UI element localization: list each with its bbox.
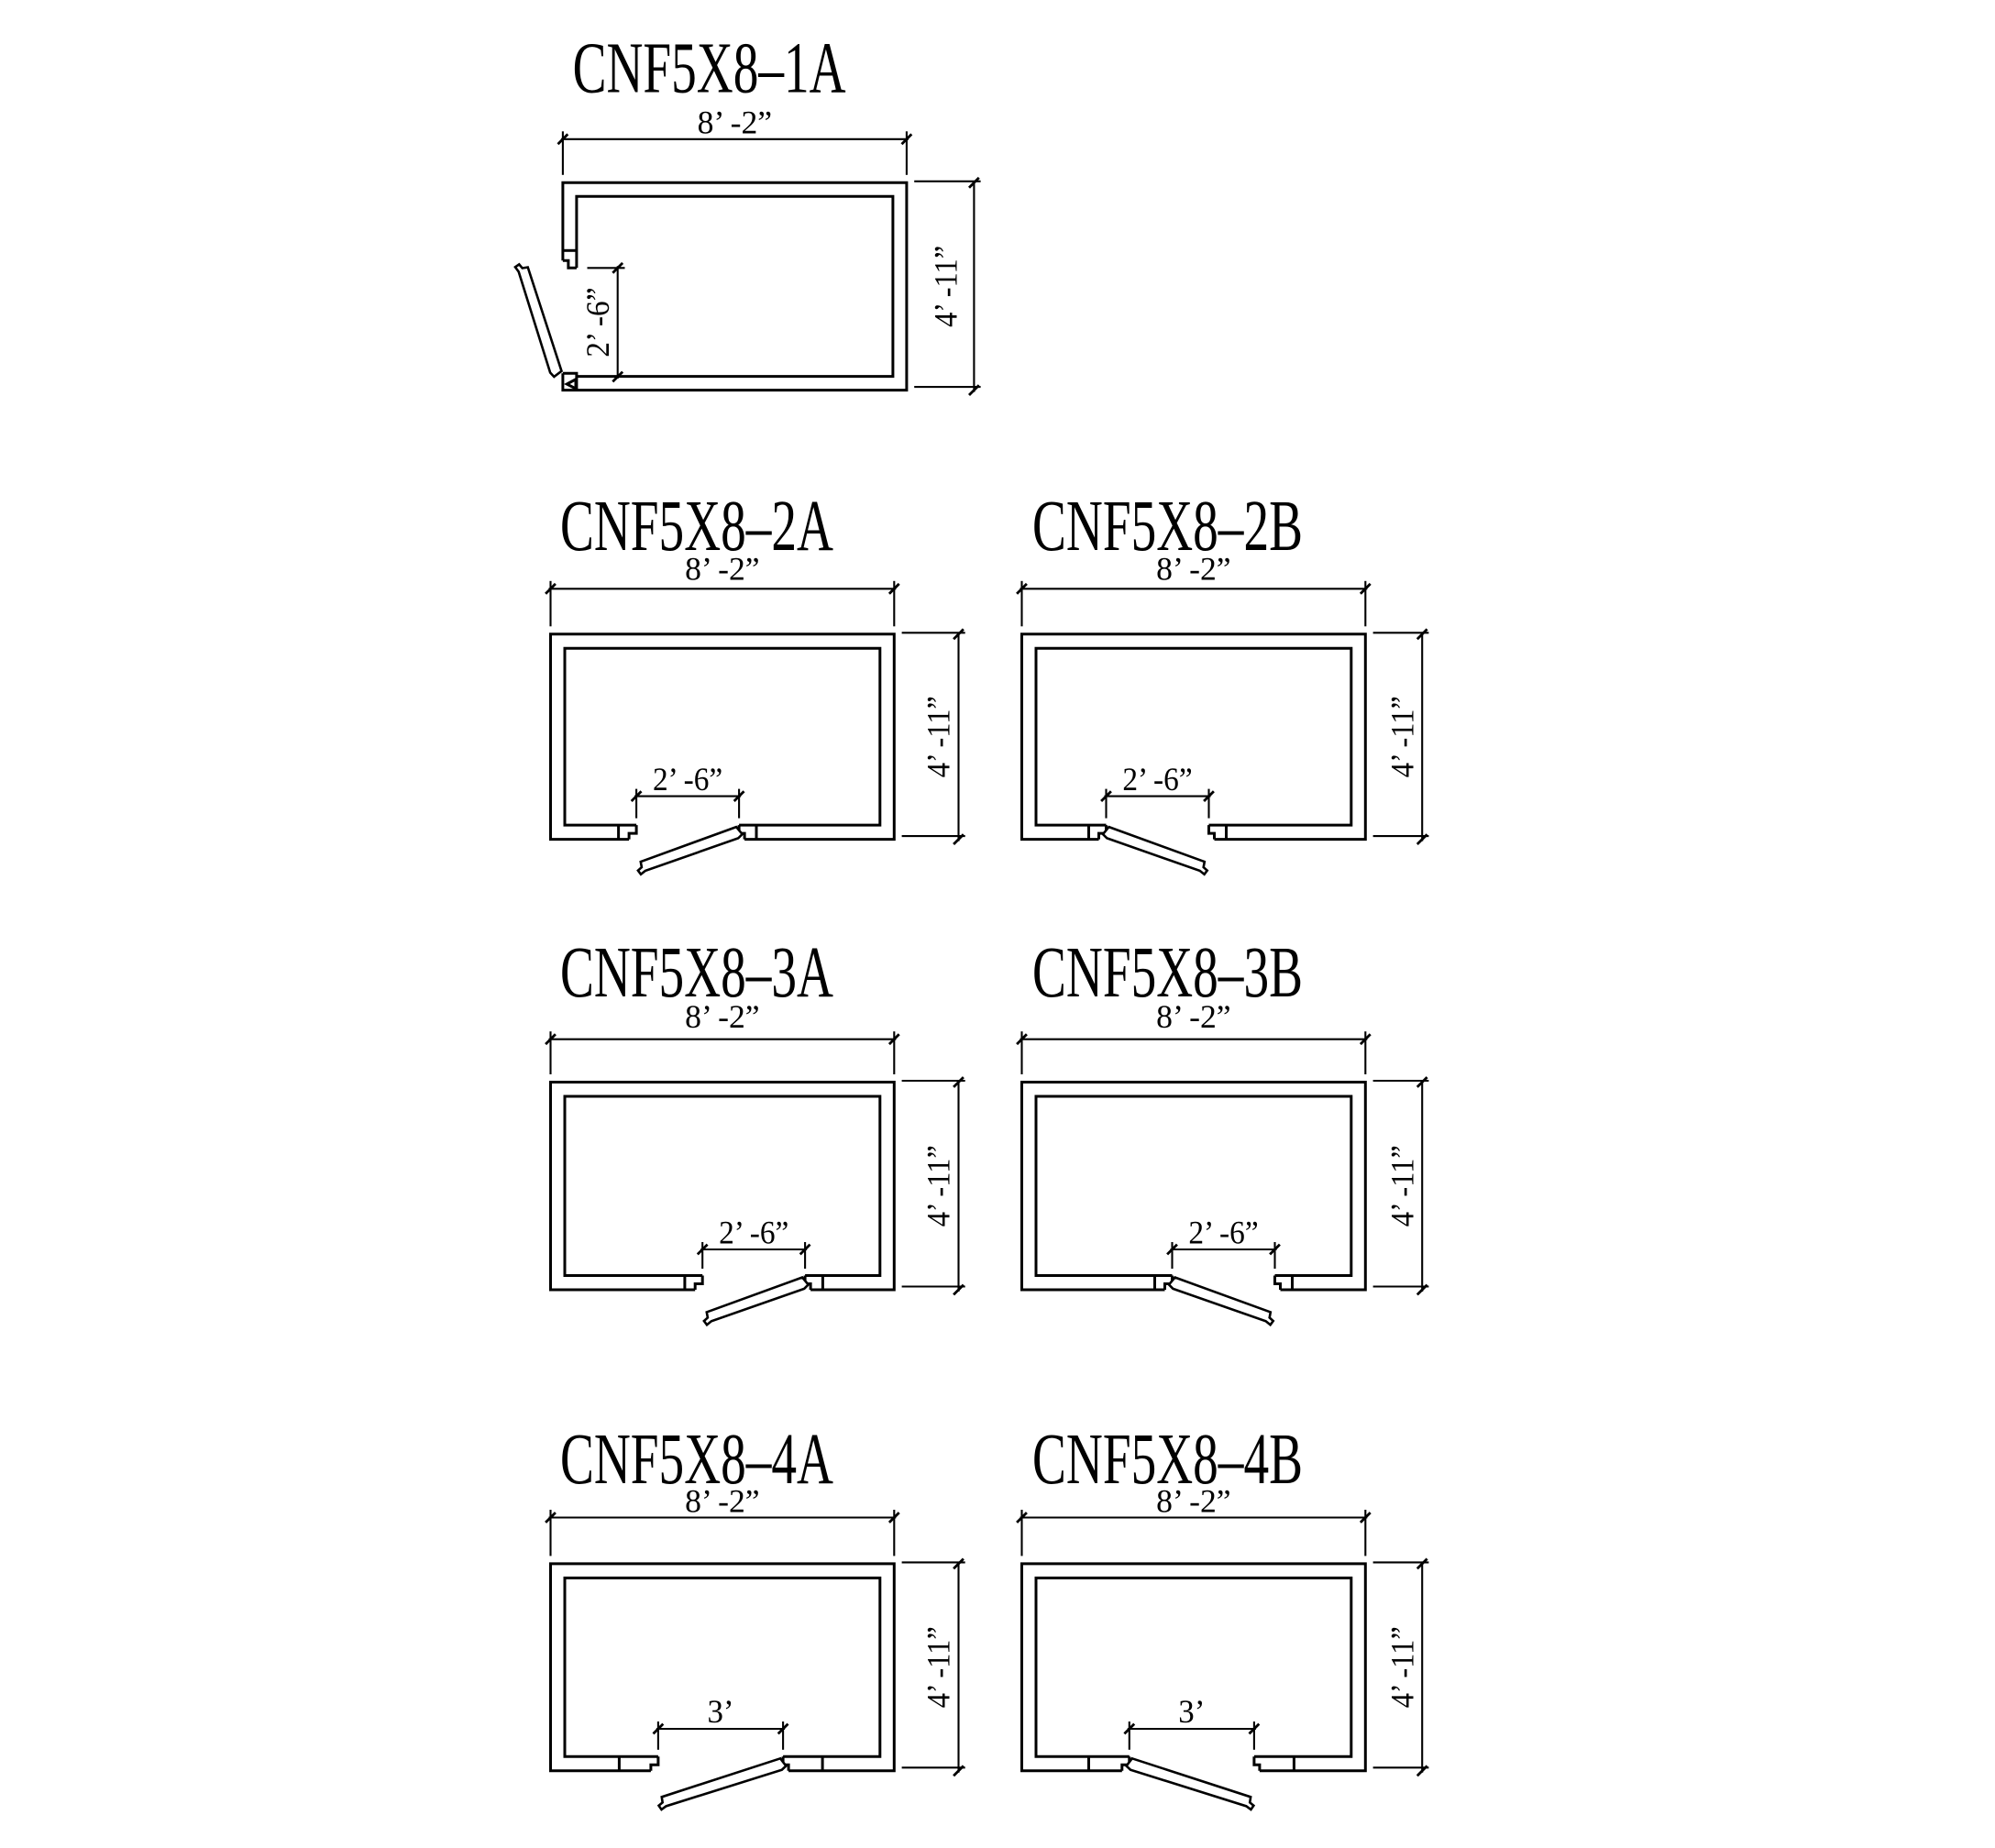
svg-text:8’ -2”: 8’ -2” [685, 1482, 759, 1519]
svg-text:2’ -6”: 2’ -6” [1122, 761, 1192, 797]
svg-text:4’ -11”: 4’ -11” [920, 696, 957, 777]
svg-text:4’ -11”: 4’ -11” [1384, 696, 1421, 777]
svg-text:4’ -11”: 4’ -11” [920, 1145, 957, 1226]
svg-text:2’ -6”: 2’ -6” [1188, 1214, 1258, 1250]
svg-text:8’ -2”: 8’ -2” [698, 104, 772, 140]
svg-text:3’: 3’ [1178, 1693, 1205, 1731]
svg-text:8’ -2”: 8’ -2” [685, 550, 759, 587]
svg-text:CNF5X8–1A: CNF5X8–1A [573, 27, 846, 108]
svg-text:4’ -11”: 4’ -11” [1384, 1626, 1421, 1708]
svg-text:3’: 3’ [707, 1693, 733, 1731]
svg-text:8’ -2”: 8’ -2” [1156, 550, 1230, 587]
svg-text:2’ -6”: 2’ -6” [579, 287, 616, 357]
svg-text:8’ -2”: 8’ -2” [1156, 998, 1230, 1035]
svg-text:2’ -6”: 2’ -6” [719, 1214, 788, 1250]
svg-text:8’ -2”: 8’ -2” [685, 998, 759, 1035]
svg-text:8’ -2”: 8’ -2” [1156, 1482, 1230, 1519]
svg-text:4’ -11”: 4’ -11” [928, 246, 964, 327]
svg-text:4’ -11”: 4’ -11” [1384, 1145, 1421, 1226]
svg-text:2’ -6”: 2’ -6” [653, 761, 722, 797]
svg-text:4’ -11”: 4’ -11” [920, 1626, 957, 1708]
